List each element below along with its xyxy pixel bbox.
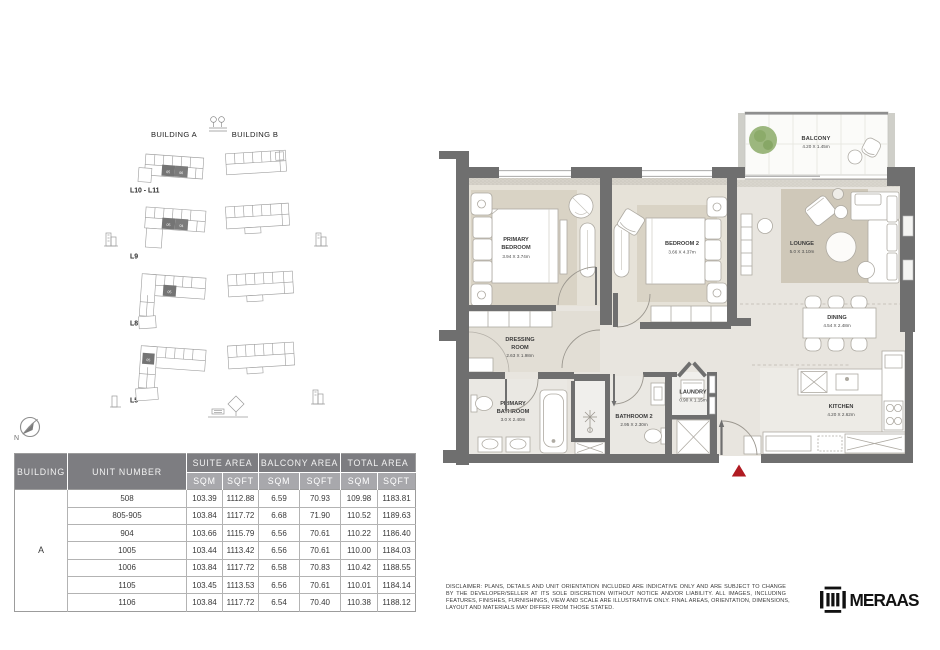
svg-text:DRESSING: DRESSING — [505, 337, 534, 343]
svg-text:0.90 X 1.15m: 0.90 X 1.15m — [679, 398, 706, 403]
svg-text:3.0 X 2.40m: 3.0 X 2.40m — [501, 417, 526, 422]
svg-text:MERAAS: MERAAS — [850, 590, 920, 610]
svg-text:L8: L8 — [130, 321, 138, 328]
svg-text:ROOM: ROOM — [511, 345, 529, 351]
svg-text:BEDROOM: BEDROOM — [501, 245, 531, 251]
svg-text:BATHROOM 2: BATHROOM 2 — [615, 414, 652, 420]
svg-text:4.20 X 2.62m: 4.20 X 2.62m — [827, 412, 854, 417]
svg-text:05: 05 — [167, 290, 171, 294]
svg-text:PRIMARY: PRIMARY — [503, 237, 529, 243]
svg-text:3.94 X 3.74m: 3.94 X 3.74m — [502, 254, 529, 259]
svg-text:LOUNGE: LOUNGE — [790, 241, 814, 247]
svg-text:2.63 X 1.98m: 2.63 X 1.98m — [506, 353, 533, 358]
svg-text:06: 06 — [179, 171, 183, 175]
svg-text:5.0 X 3.10m: 5.0 X 3.10m — [790, 249, 815, 254]
svg-text:4.54 X 2.48m: 4.54 X 2.48m — [823, 323, 850, 328]
svg-text:BEDROOM 2: BEDROOM 2 — [665, 241, 699, 247]
svg-text:2.95 X 2.30m: 2.95 X 2.30m — [620, 422, 647, 427]
svg-text:BUILDING B: BUILDING B — [232, 130, 279, 139]
svg-text:05: 05 — [146, 358, 150, 362]
svg-text:04: 04 — [179, 224, 183, 228]
svg-text:KITCHEN: KITCHEN — [829, 404, 854, 410]
svg-text:L9: L9 — [130, 254, 138, 261]
svg-text:05: 05 — [166, 223, 170, 227]
svg-text:BUILDING A: BUILDING A — [151, 130, 198, 139]
svg-text:N: N — [14, 435, 19, 442]
svg-text:3.66 X 4.37m: 3.66 X 4.37m — [668, 250, 695, 255]
svg-text:05: 05 — [166, 170, 170, 174]
svg-text:LAUNDRY: LAUNDRY — [679, 390, 706, 396]
svg-text:BALCONY: BALCONY — [801, 136, 830, 142]
svg-text:L10 - L11: L10 - L11 — [130, 188, 160, 195]
svg-text:PRIMARY: PRIMARY — [500, 401, 526, 407]
svg-text:DINING: DINING — [827, 315, 847, 321]
svg-text:4.20 X 1.45m: 4.20 X 1.45m — [802, 144, 829, 149]
